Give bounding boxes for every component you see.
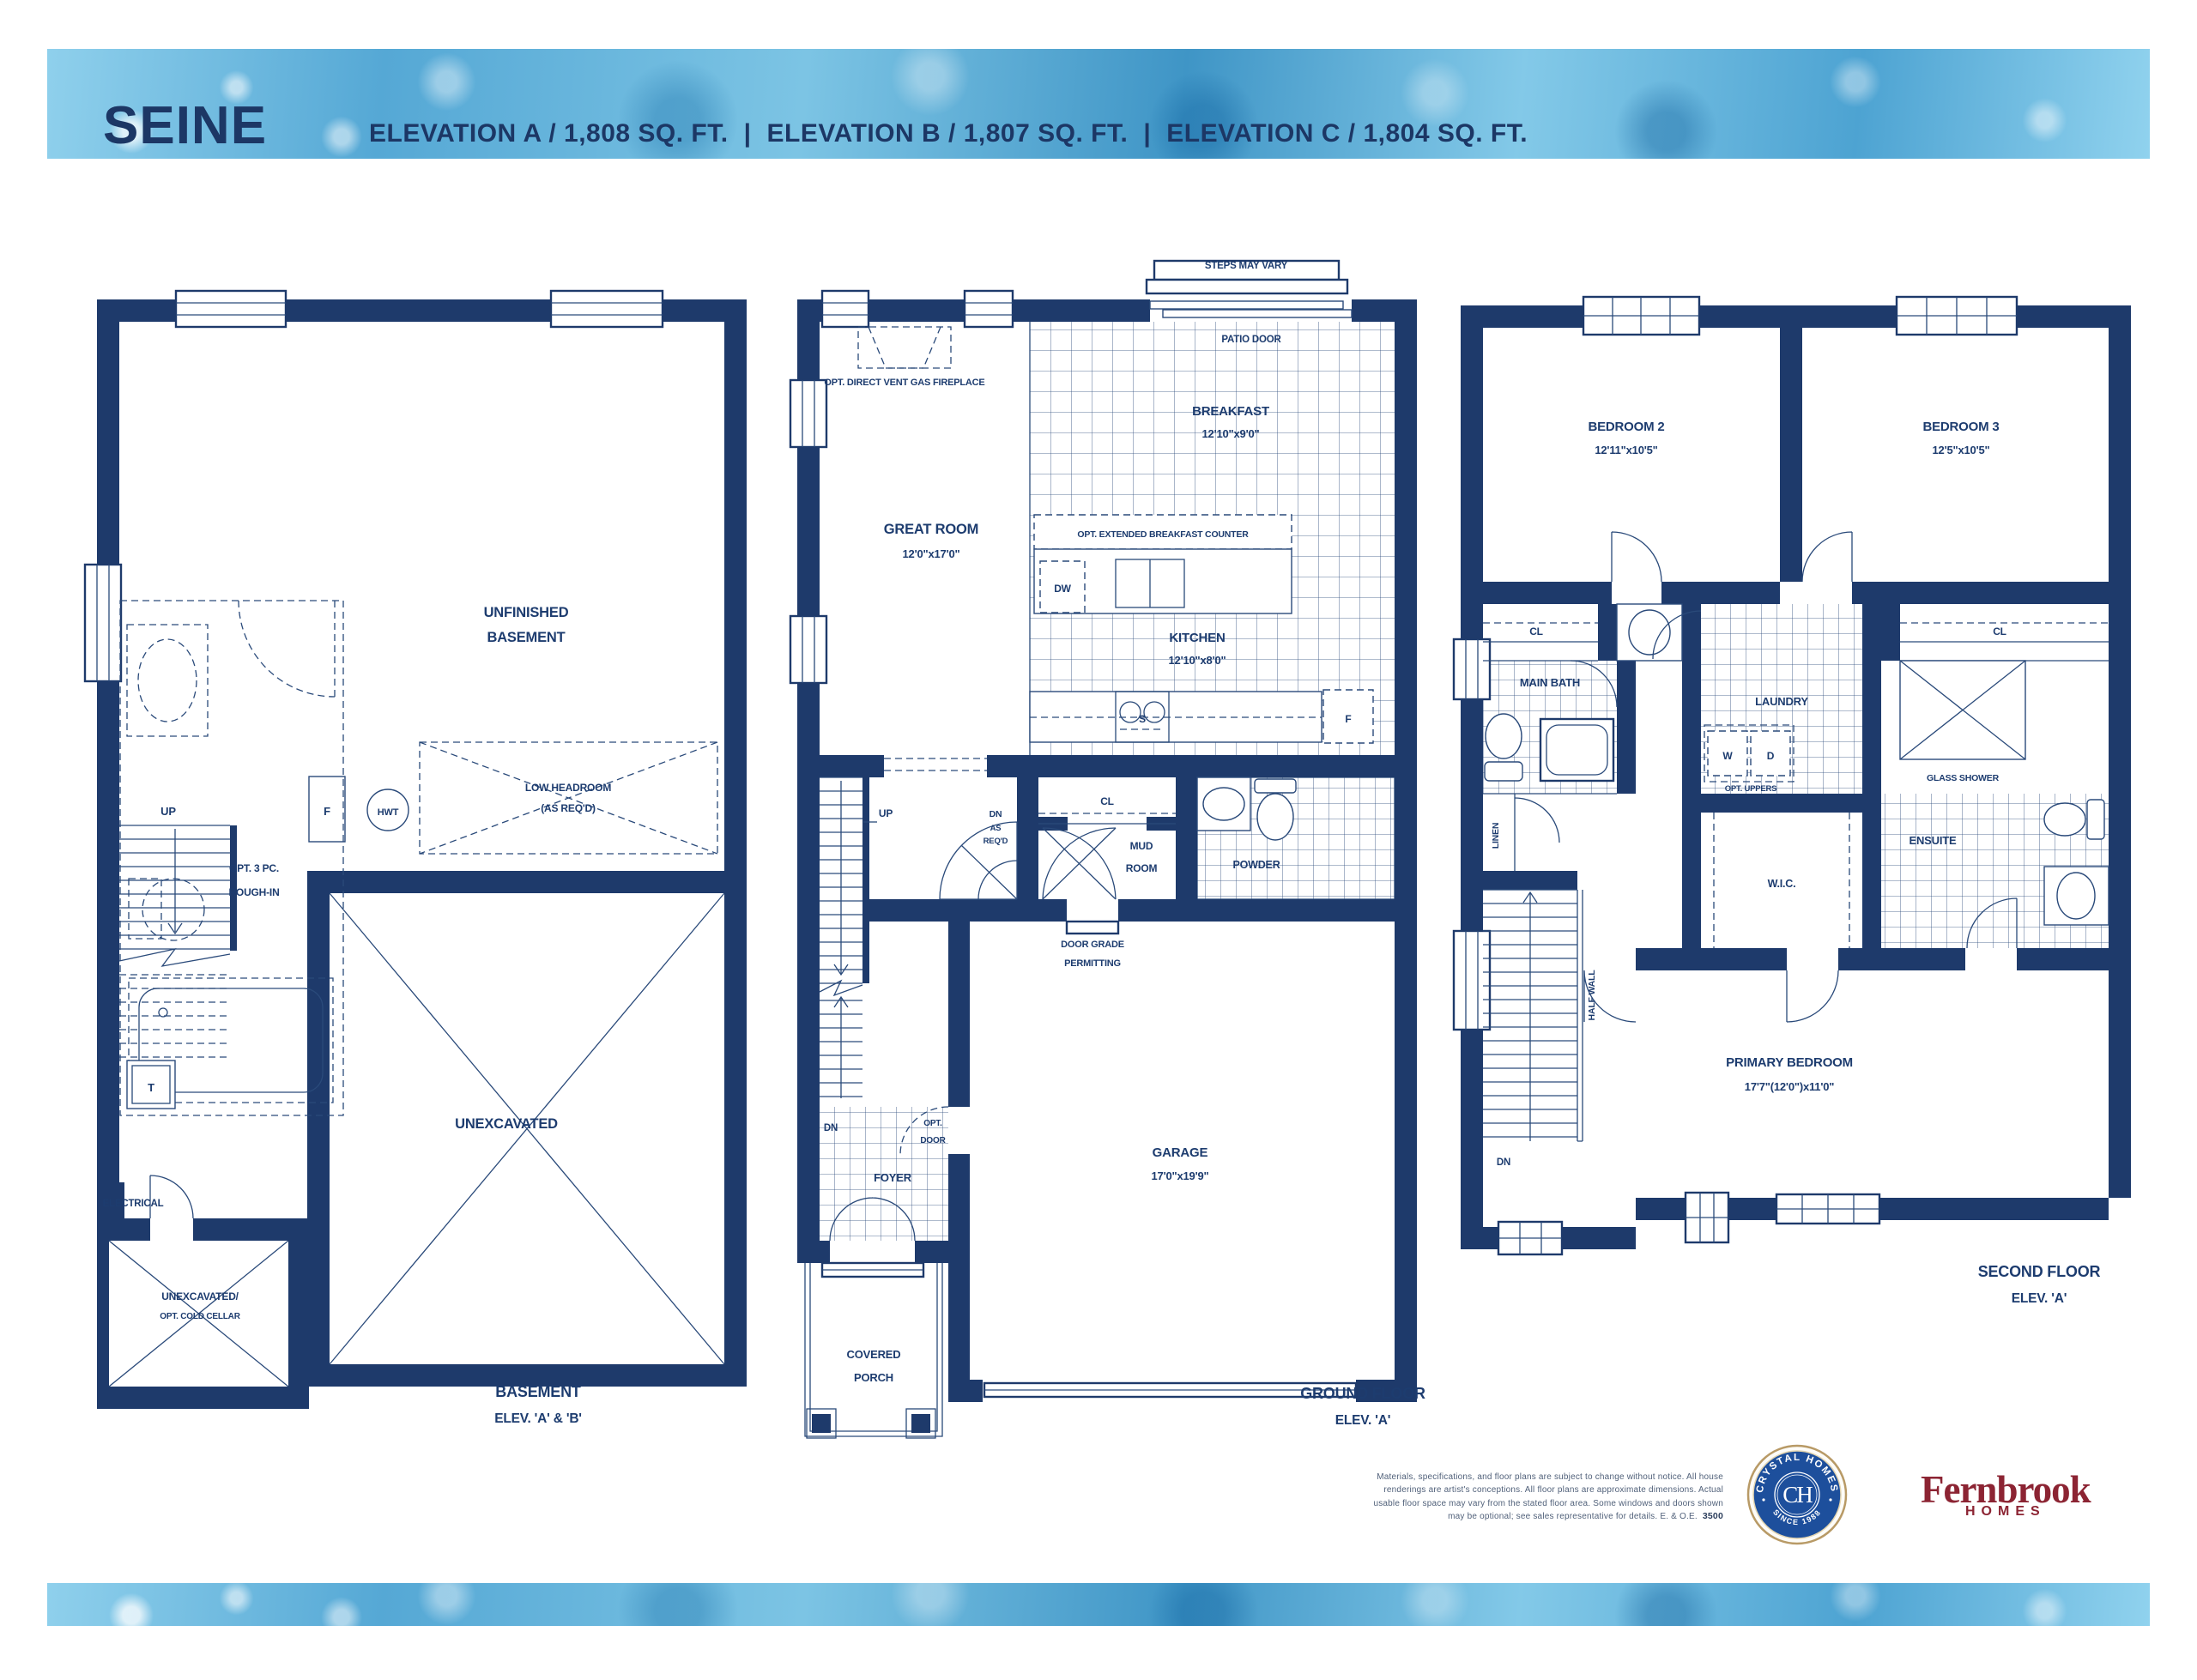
label-wic: W.I.C. [1768,878,1796,890]
basement-plan: UNFINISHED BASEMENT OPT. 3 PC. ROUGH-IN … [85,291,747,1426]
label-dn-as-reqd-2: AS [990,824,1002,833]
label-powder: POWDER [1232,859,1280,871]
logo-dot-right [1829,1498,1831,1501]
linen-closet [1483,794,1617,871]
label-bedroom2: BEDROOM 2 [1588,420,1664,434]
basement-caption-2: ELEV. 'A' & 'B' [494,1411,582,1426]
label-mud-room: MUD [1130,840,1153,852]
ground-floor-plan: STEPS MAY VARY PATIO DOOR OPT. DIRECT VE… [790,261,1425,1438]
basement-stairs [119,825,230,1218]
crystal-homes-logo: CRYSTAL HOMES SINCE 1988 CH [1746,1443,1849,1546]
label-tank: T [148,1081,154,1094]
label-furnace: F [324,805,330,818]
bedroom-doors [1612,532,1852,582]
label-opt-door: OPT. [923,1119,942,1128]
second-caption-2: ELEV. 'A' [2012,1291,2067,1306]
label-opt-door-2: DOOR [920,1136,946,1145]
label-cl-left: CL [1529,625,1543,638]
label-low-headroom: LOW HEADROOM [525,782,611,794]
disclaimer-line: renderings are artist's conceptions. All… [1243,1484,1723,1496]
plan-code: 3500 [1703,1511,1723,1521]
second-stairs [1483,890,1583,1141]
footer-banner [47,1583,2150,1626]
label-linen: LINEN [1491,823,1501,849]
label-bedroom2-dims: 12'11"x10'5" [1595,444,1657,456]
label-cold-cellar-2: OPT. COLD CELLAR [160,1312,240,1321]
label-half-wall: HALF WALL [1587,970,1597,1021]
label-electrical: ELECTRICAL [103,1199,164,1209]
basement-windows [85,291,663,681]
label-dw: DW [1054,583,1071,595]
label-bedroom3: BEDROOM 3 [1922,420,1999,434]
label-ensuite: ENSUITE [1910,834,1957,847]
ground-caption: GROUND FLOOR [1300,1385,1425,1402]
disclaimer-line: usable floor space may vary from the sta… [1243,1497,1723,1510]
label-garage: GARAGE [1153,1145,1208,1160]
label-steps-may-vary: STEPS MAY VARY [1205,261,1288,271]
label-breakfast-counter: OPT. EXTENDED BREAKFAST COUNTER [1077,529,1249,540]
glass-shower [1900,661,2025,759]
winder-stairs [940,822,1017,899]
label-door-grade-2: PERMITTING [1064,958,1121,969]
label-great-room-dims: 12'0"x17'0" [903,547,960,560]
logo-dot-left [1762,1498,1764,1501]
label-unfinished-basement-2: BASEMENT [487,630,566,645]
label-dryer: D [1767,750,1775,762]
wic-interior [1714,813,1849,1022]
label-rough-in: OPT. 3 PC. [229,862,279,874]
cased-opening [884,758,987,771]
label-opt-uppers: OPT. UPPERS [1725,784,1777,794]
label-fridge: F [1345,713,1351,725]
second-caption: SECOND FLOOR [1978,1263,2101,1280]
label-dn-as-reqd-3: REQ'D [984,837,1008,846]
label-washer: W [1722,750,1733,762]
label-unexcavated: UNEXCAVATED [455,1116,558,1132]
label-foyer: FOYER [874,1171,912,1184]
label-kitchen-dims: 12'10"x8'0" [1169,654,1226,667]
ground-caption-2: ELEV. 'A' [1335,1413,1390,1428]
label-unfinished-basement: UNFINISHED [484,605,569,620]
fernbrook-homes-logo: Fernbrook HOMES [1921,1471,2079,1520]
label-kitchen: KITCHEN [1169,631,1225,645]
label-fireplace: OPT. DIRECT VENT GAS FIREPLACE [824,378,984,388]
ground-tiled-floors [820,322,1395,1241]
label-main-bath: MAIN BATH [1520,676,1580,689]
disclaimer-line: may be optional; see sales representativ… [1243,1510,1723,1523]
label-mud-room-2: ROOM [1126,862,1158,874]
label-bedroom3-dims: 12'5"x10'5" [1933,444,1990,456]
disclaimer-text: Materials, specifications, and floor pla… [1243,1471,1723,1523]
label-dn-as-reqd: DN [990,809,1002,819]
label-cl-right: CL [1993,625,2006,638]
fireplace [858,327,951,368]
label-laundry: LAUNDRY [1755,695,1808,708]
label-primary-bedroom: PRIMARY BEDROOM [1726,1055,1853,1070]
label-covered-porch-2: PORCH [854,1371,893,1384]
label-breakfast-dims: 12'10"x9'0" [1202,427,1260,440]
second-floor-plan: BEDROOM 2 12'11"x10'5" BEDROOM 3 12'5"x1… [1454,297,2131,1306]
disclaimer-line: Materials, specifications, and floor pla… [1243,1471,1723,1484]
label-up: UP [160,805,176,818]
floor-plans-sheet: UNFINISHED BASEMENT OPT. 3 PC. ROUGH-IN … [0,0,2197,1680]
label-closet: CL [1100,795,1114,807]
label-glass-shower: GLASS SHOWER [1927,773,2000,783]
basement-caption: BASEMENT [495,1383,581,1400]
label-great-room: GREAT ROOM [884,522,978,537]
label-garage-dims: 17'0"x19'9" [1152,1169,1209,1182]
label-dn: DN [1497,1157,1510,1168]
label-breakfast: BREAKFAST [1192,404,1269,419]
ground-windows [790,291,1013,683]
low-headroom-area [420,742,717,854]
disclaimer-line-4: may be optional; see sales representativ… [1448,1512,1698,1521]
crystal-logo-monogram: CH [1782,1482,1813,1508]
label-rough-in-2: ROUGH-IN [228,886,279,898]
kitchen-counter [1030,690,1373,743]
label-covered-porch: COVERED [847,1348,901,1361]
label-dn: DN [824,1123,838,1133]
label-sink: S [1139,713,1146,725]
label-up: UP [879,807,893,819]
label-hwt: HWT [378,807,399,818]
label-primary-dims: 17'7"(12'0")x11'0" [1745,1080,1834,1093]
label-door-grade: DOOR GRADE [1061,940,1124,950]
label-cold-cellar: UNEXCAVATED/ [161,1290,239,1302]
label-low-headroom-2: (AS REQ'D) [541,802,596,814]
powder-fixtures [1197,777,1296,840]
label-patio-door: PATIO DOOR [1221,335,1281,345]
